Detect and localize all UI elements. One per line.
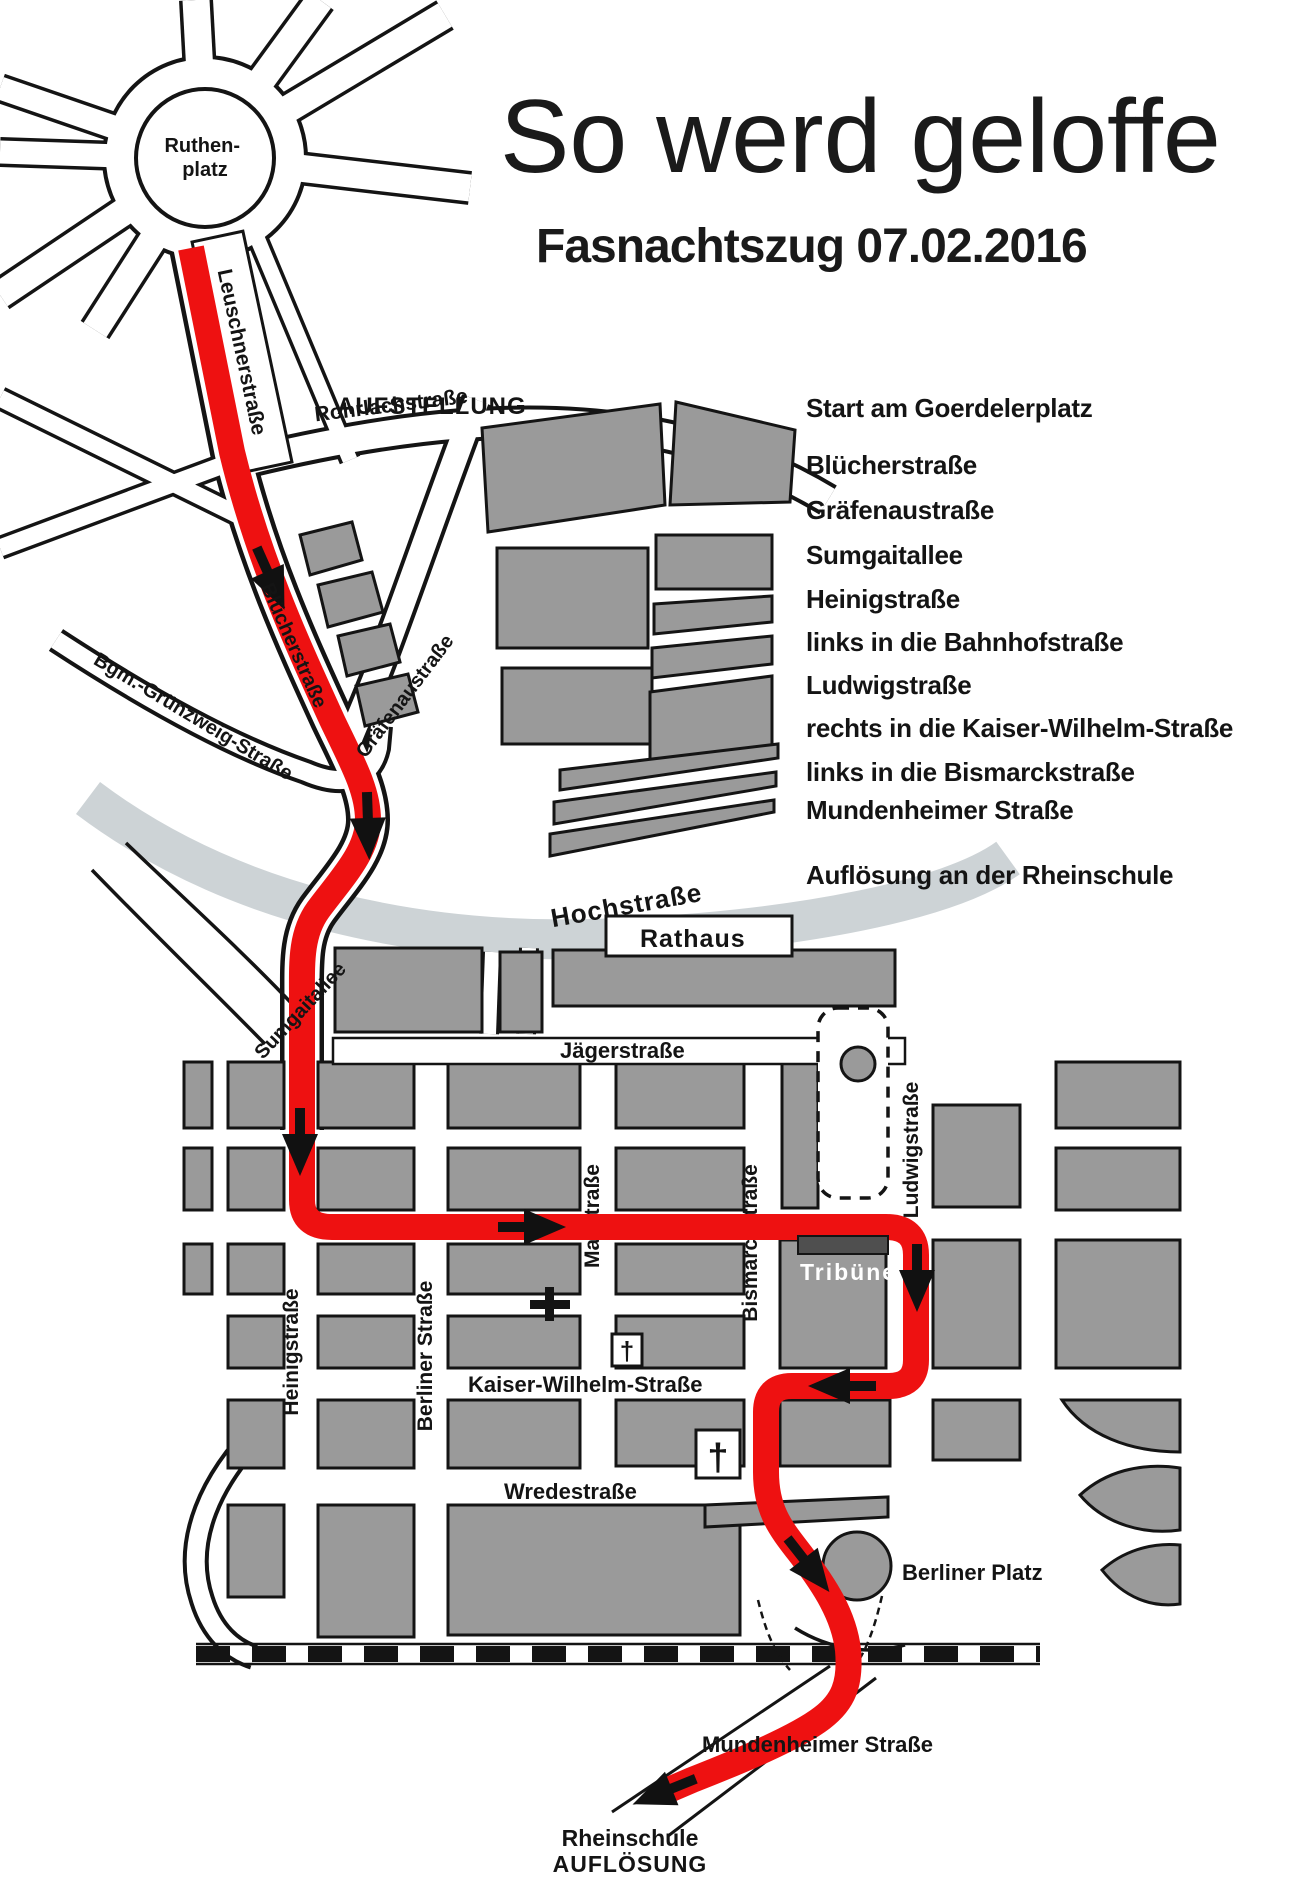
park-circle xyxy=(841,1047,875,1081)
page-subtitle: Fasnachtszug 07.02.2016 xyxy=(536,220,1087,273)
route-description-list: Start am Goerdelerplatz Blücherstraße Gr… xyxy=(806,393,1233,890)
route-list-item: links in die Bahnhofstraße xyxy=(806,627,1123,657)
label-tribuene: Tribüne xyxy=(800,1259,897,1285)
page-title: So werd geloffe xyxy=(500,79,1221,195)
route-list-item: links in die Bismarckstraße xyxy=(806,757,1135,787)
route-list-item: Blücherstraße xyxy=(806,450,977,480)
svg-text:†: † xyxy=(620,1336,634,1366)
label-heinigstrasse: Heinigstraße xyxy=(280,1288,303,1415)
label-mundenheimer-strasse: Mundenheimer Straße xyxy=(702,1732,933,1757)
label-bgm-gruenzweig: Bgm.-Grünzweig-Straße xyxy=(90,649,297,785)
label-ludwigstrasse: Ludwigstraße xyxy=(900,1082,923,1219)
railway xyxy=(196,1644,1040,1664)
route-list-item: Ludwigstraße xyxy=(806,670,971,700)
church-icon: † xyxy=(696,1430,740,1479)
label-aufloesung: AUFLÖSUNG xyxy=(553,1851,708,1877)
label-wredestrasse: Wredestraße xyxy=(504,1479,637,1504)
route-list-item: Gräfenaustraße xyxy=(806,495,994,525)
rathaus-building xyxy=(553,950,895,1006)
route-list-item: Heinigstraße xyxy=(806,584,960,614)
label-jaegerstrasse: Jägerstraße xyxy=(560,1038,685,1063)
route-list-item: rechts in die Kaiser-Wilhelm-Straße xyxy=(806,713,1233,743)
label-berliner-platz: Berliner Platz xyxy=(902,1560,1043,1585)
label-rheinschule: Rheinschule xyxy=(562,1825,699,1851)
label-ruthenplatz: Ruthen- platz xyxy=(164,135,245,181)
label-rathaus: Rathaus xyxy=(640,925,746,953)
label-bismarckstrasse: Bismarckstraße xyxy=(739,1164,762,1322)
svg-text:†: † xyxy=(707,1437,728,1479)
church-icon: † xyxy=(612,1334,642,1366)
route-list-item: Start am Goerdelerplatz xyxy=(806,393,1093,423)
park-outline xyxy=(818,1008,888,1198)
blocks-layer xyxy=(184,402,1180,1637)
tribuene-stand xyxy=(798,1236,888,1254)
route-map-svg: Bahnhofstraße Maxstraße Bismarckstraße †… xyxy=(0,0,1299,1880)
route-list-item: Mundenheimer Straße xyxy=(806,795,1073,825)
route-list-item: Sumgaitallee xyxy=(806,540,963,570)
label-berliner-strasse: Berliner Straße xyxy=(414,1281,437,1432)
label-kaiser-wilhelm: Kaiser-Wilhelm-Straße xyxy=(468,1372,703,1397)
route-list-item: Auflösung an der Rheinschule xyxy=(806,860,1173,890)
